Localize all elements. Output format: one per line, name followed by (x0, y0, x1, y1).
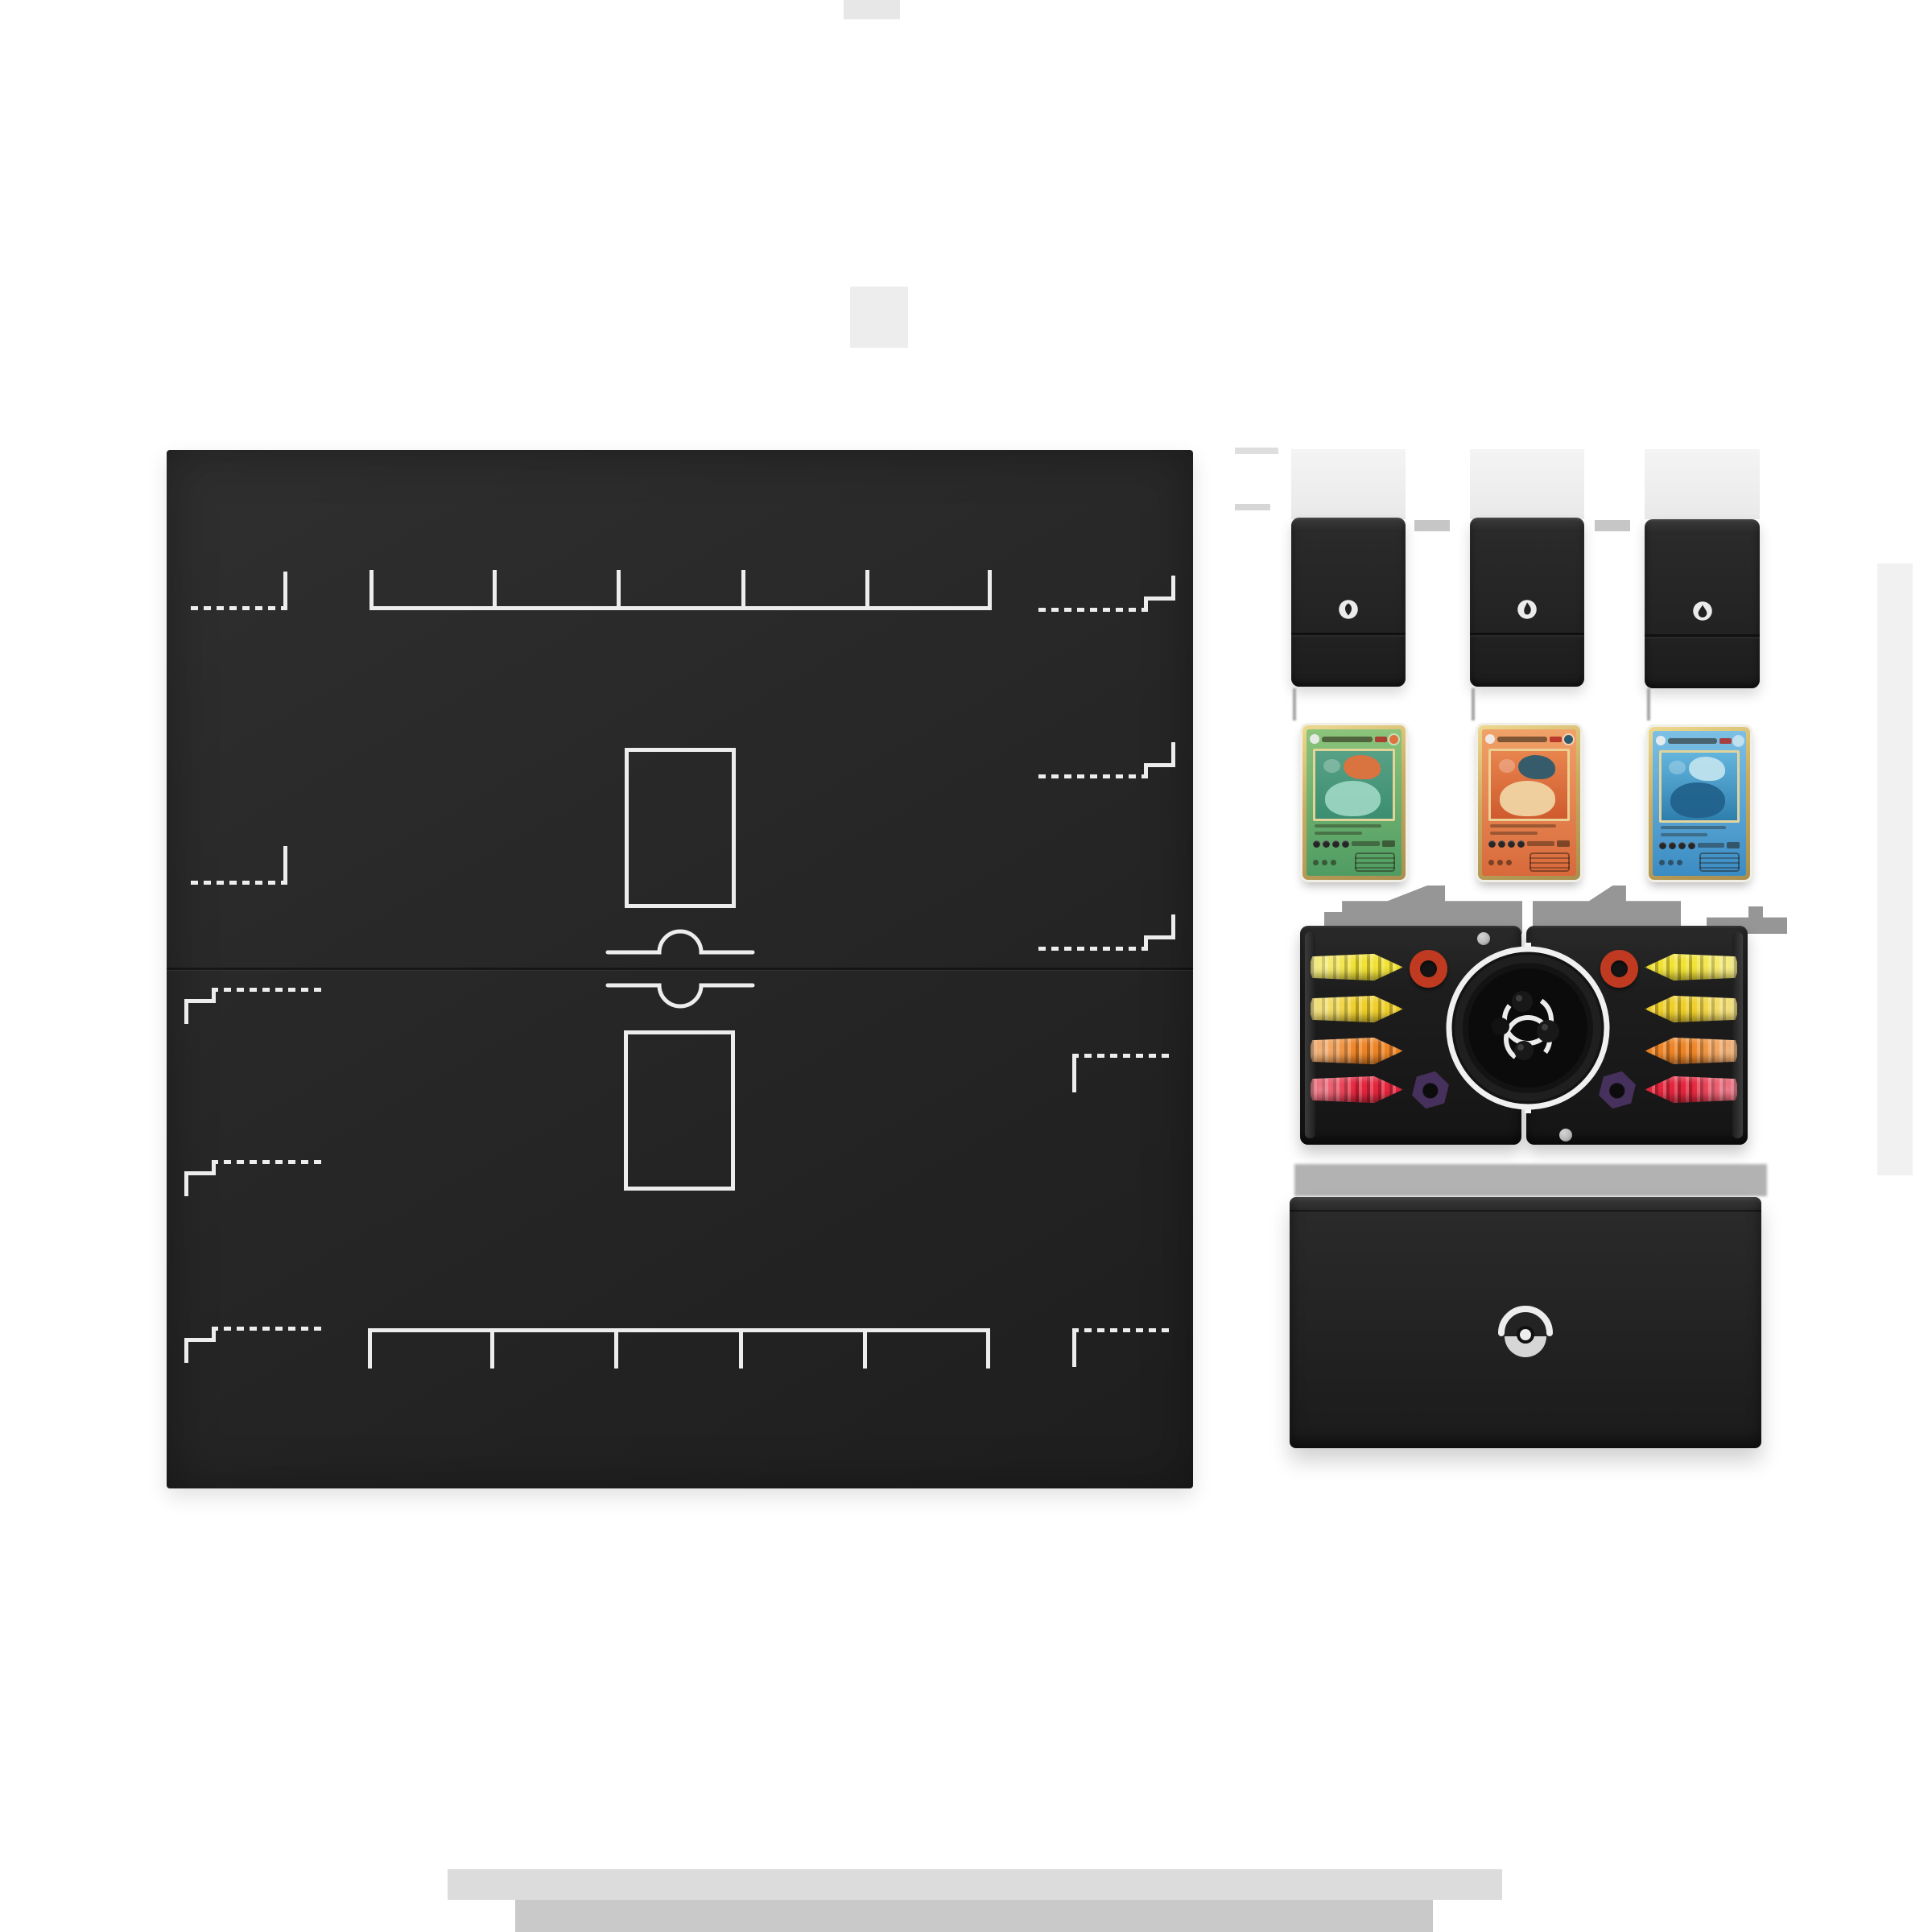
background-artifact (1877, 563, 1913, 1175)
prize-zone-mark (1076, 1328, 1169, 1332)
pokemon-tcg-premium-set-photo (0, 0, 1932, 1932)
background-artifact (1414, 520, 1450, 531)
bench-tick (739, 1332, 743, 1368)
metal-marble (1559, 1129, 1572, 1141)
deck-box-lid-seam (1291, 633, 1406, 635)
card-footer (1313, 853, 1395, 871)
deck-box-grass (1291, 518, 1406, 687)
pokeball-die-well (1443, 943, 1613, 1113)
card-text-line (1661, 833, 1707, 836)
discard-zone-step (212, 1160, 216, 1175)
card-text-line (1661, 826, 1726, 829)
storage-box-lid-seam (1290, 1210, 1761, 1212)
lost-zone-mark (1076, 1054, 1169, 1058)
deck-box-water (1645, 519, 1760, 688)
energy-type-icon (1389, 735, 1398, 744)
discard-zone-step (184, 1171, 188, 1196)
card-name-bar (1497, 737, 1547, 742)
hp-chip (1719, 738, 1732, 744)
card-text-line (1490, 824, 1556, 828)
card-art (1659, 750, 1740, 823)
background-artifact (1235, 504, 1270, 510)
deck-box-shadow (1647, 688, 1650, 720)
hp-chip (1375, 737, 1387, 742)
pokeball-icon (1492, 1293, 1559, 1360)
grass-energy-icon (1336, 597, 1360, 621)
card-text-line (1315, 832, 1362, 835)
card-text-line (1490, 832, 1538, 835)
stage-badge (1310, 734, 1319, 744)
bench-tick (863, 1332, 867, 1368)
attack-row (1488, 840, 1570, 848)
deck-zone-step (184, 1338, 188, 1363)
blastoise-card (1649, 727, 1750, 880)
poison-marker (1410, 950, 1447, 988)
background-artifact (1595, 520, 1630, 531)
background-artifact (448, 1869, 1502, 1900)
background-artifact (850, 287, 908, 348)
energy-type-icon (1734, 737, 1743, 745)
side-zone-step (212, 988, 216, 1003)
bench-tick (986, 1332, 990, 1368)
stage-badge (1656, 736, 1666, 745)
card-footer (1659, 853, 1740, 871)
accessory-tray (1300, 926, 1748, 1145)
bench-line (368, 1328, 990, 1332)
deck-box-shadow (1645, 449, 1760, 519)
deck-box-lid-seam (1470, 633, 1584, 635)
deck-box-shadow (1291, 449, 1406, 519)
deck-zone-step (188, 1338, 212, 1342)
side-zone-mark (216, 988, 321, 992)
active-card-zone (624, 1030, 735, 1191)
bench-tick (368, 1332, 372, 1368)
card-art (1313, 749, 1395, 821)
attack-row (1659, 841, 1740, 849)
bench-tick (614, 1332, 618, 1368)
deck-box-shadow (1472, 688, 1475, 720)
card-name-bar (1322, 737, 1373, 742)
deck-zone-step (212, 1327, 216, 1342)
prize-zone-corner (1072, 1328, 1076, 1367)
discard-zone-mark (216, 1160, 321, 1164)
energy-type-icon (1564, 735, 1573, 744)
charizard-card (1478, 725, 1580, 880)
hp-chip (1550, 737, 1562, 742)
tray-shadow (1294, 1164, 1767, 1196)
background-artifact (1235, 448, 1278, 454)
deck-box-fire (1470, 518, 1584, 687)
side-zone-step (188, 999, 212, 1003)
card-name-bar (1668, 738, 1717, 744)
card-footer (1488, 853, 1570, 871)
card-text-line (1315, 824, 1381, 828)
storage-box (1290, 1197, 1761, 1448)
deck-box-shadow (1470, 449, 1584, 519)
venusaur-card (1302, 725, 1406, 880)
deck-box-shadow (1293, 688, 1296, 720)
attack-row (1313, 840, 1395, 848)
fire-energy-icon (1515, 597, 1539, 621)
side-zone-step (184, 999, 188, 1024)
discard-zone-step (188, 1171, 212, 1175)
lost-zone-corner (1072, 1054, 1076, 1092)
background-artifact (844, 0, 900, 19)
water-energy-icon (1690, 599, 1715, 623)
deck-zone-mark (216, 1327, 321, 1331)
pokeball-seam-icon (592, 926, 769, 1014)
deck-box-lid-seam (1645, 634, 1760, 637)
background-artifact (515, 1900, 1433, 1932)
bench-tick (490, 1332, 494, 1368)
metal-marble (1477, 932, 1490, 945)
card-art (1488, 749, 1570, 821)
game-board (167, 450, 1193, 1488)
stage-badge (1485, 734, 1495, 744)
